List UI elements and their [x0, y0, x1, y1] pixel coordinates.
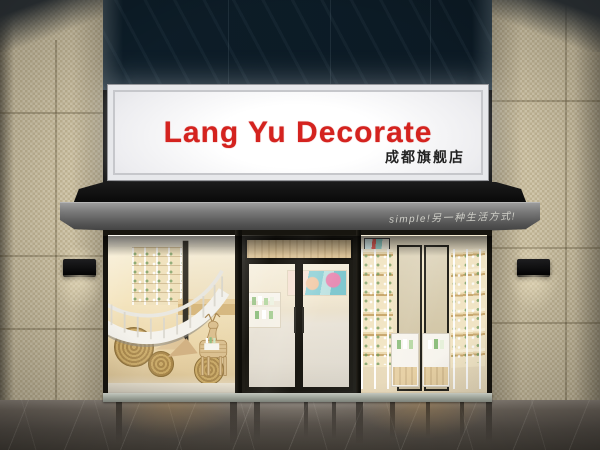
display-window-left	[108, 235, 235, 394]
store-signboard: Lang Yu Decorate 成都旗舰店	[107, 84, 489, 181]
white-ladder-shelf	[361, 249, 393, 389]
display-cabinet	[391, 333, 419, 387]
mullion-reflection	[254, 402, 260, 446]
entry-threshold	[103, 393, 492, 402]
entrance-section	[242, 235, 356, 394]
product	[440, 340, 444, 349]
mullion-reflection	[230, 402, 237, 450]
storefront-scene: Lang Yu Decorate 成都旗舰店 simple!另一种生活方式!	[0, 0, 600, 450]
lamp-glow	[508, 275, 560, 313]
tile-seam	[565, 0, 567, 402]
sign-title: Lang Yu Decorate	[115, 116, 481, 150]
tile-seam	[55, 40, 57, 402]
product	[397, 340, 401, 349]
tile-seam	[0, 112, 103, 114]
tile-seam	[492, 100, 600, 102]
ceiling-shadow-left	[0, 0, 103, 52]
door-leaf-left	[245, 260, 299, 391]
mullion-reflection	[356, 402, 363, 450]
mullion-reflection	[304, 402, 308, 442]
awning: simple!另一种生活方式!	[60, 176, 540, 238]
cabinet-doors	[424, 367, 448, 385]
glass-seam	[330, 0, 331, 90]
door-handle	[294, 307, 296, 333]
awning-shadow	[103, 236, 492, 256]
tile-seam	[492, 322, 600, 324]
tile-seam	[0, 328, 103, 330]
cabinet-doors	[393, 367, 417, 385]
product	[428, 340, 432, 349]
product	[403, 339, 407, 349]
floor-sign-glow	[190, 400, 410, 422]
display-cabinet	[422, 333, 450, 387]
lamp-glow	[54, 275, 106, 313]
sign-lightbox: Lang Yu Decorate 成都旗舰店	[115, 92, 481, 173]
product	[434, 339, 438, 349]
glass-seam	[430, 0, 431, 90]
mullion-reflection	[332, 402, 336, 444]
mullion-reflection	[390, 402, 395, 444]
ceiling-shadow-right	[492, 0, 600, 52]
sign-subtitle: 成都旗舰店	[385, 147, 465, 167]
mullion-reflection	[116, 402, 122, 448]
mullion-reflection	[460, 402, 464, 444]
display-window-right	[361, 235, 487, 394]
deer-sculpture	[190, 301, 235, 387]
white-ladder-shelf	[453, 249, 487, 389]
mullion-reflection	[486, 402, 492, 448]
door-handle	[302, 307, 304, 333]
upper-facade-glass	[103, 0, 492, 90]
mullion-reflection	[426, 402, 430, 442]
product	[409, 340, 413, 349]
door-leaf-right	[299, 260, 353, 391]
glass-seam	[228, 0, 229, 90]
